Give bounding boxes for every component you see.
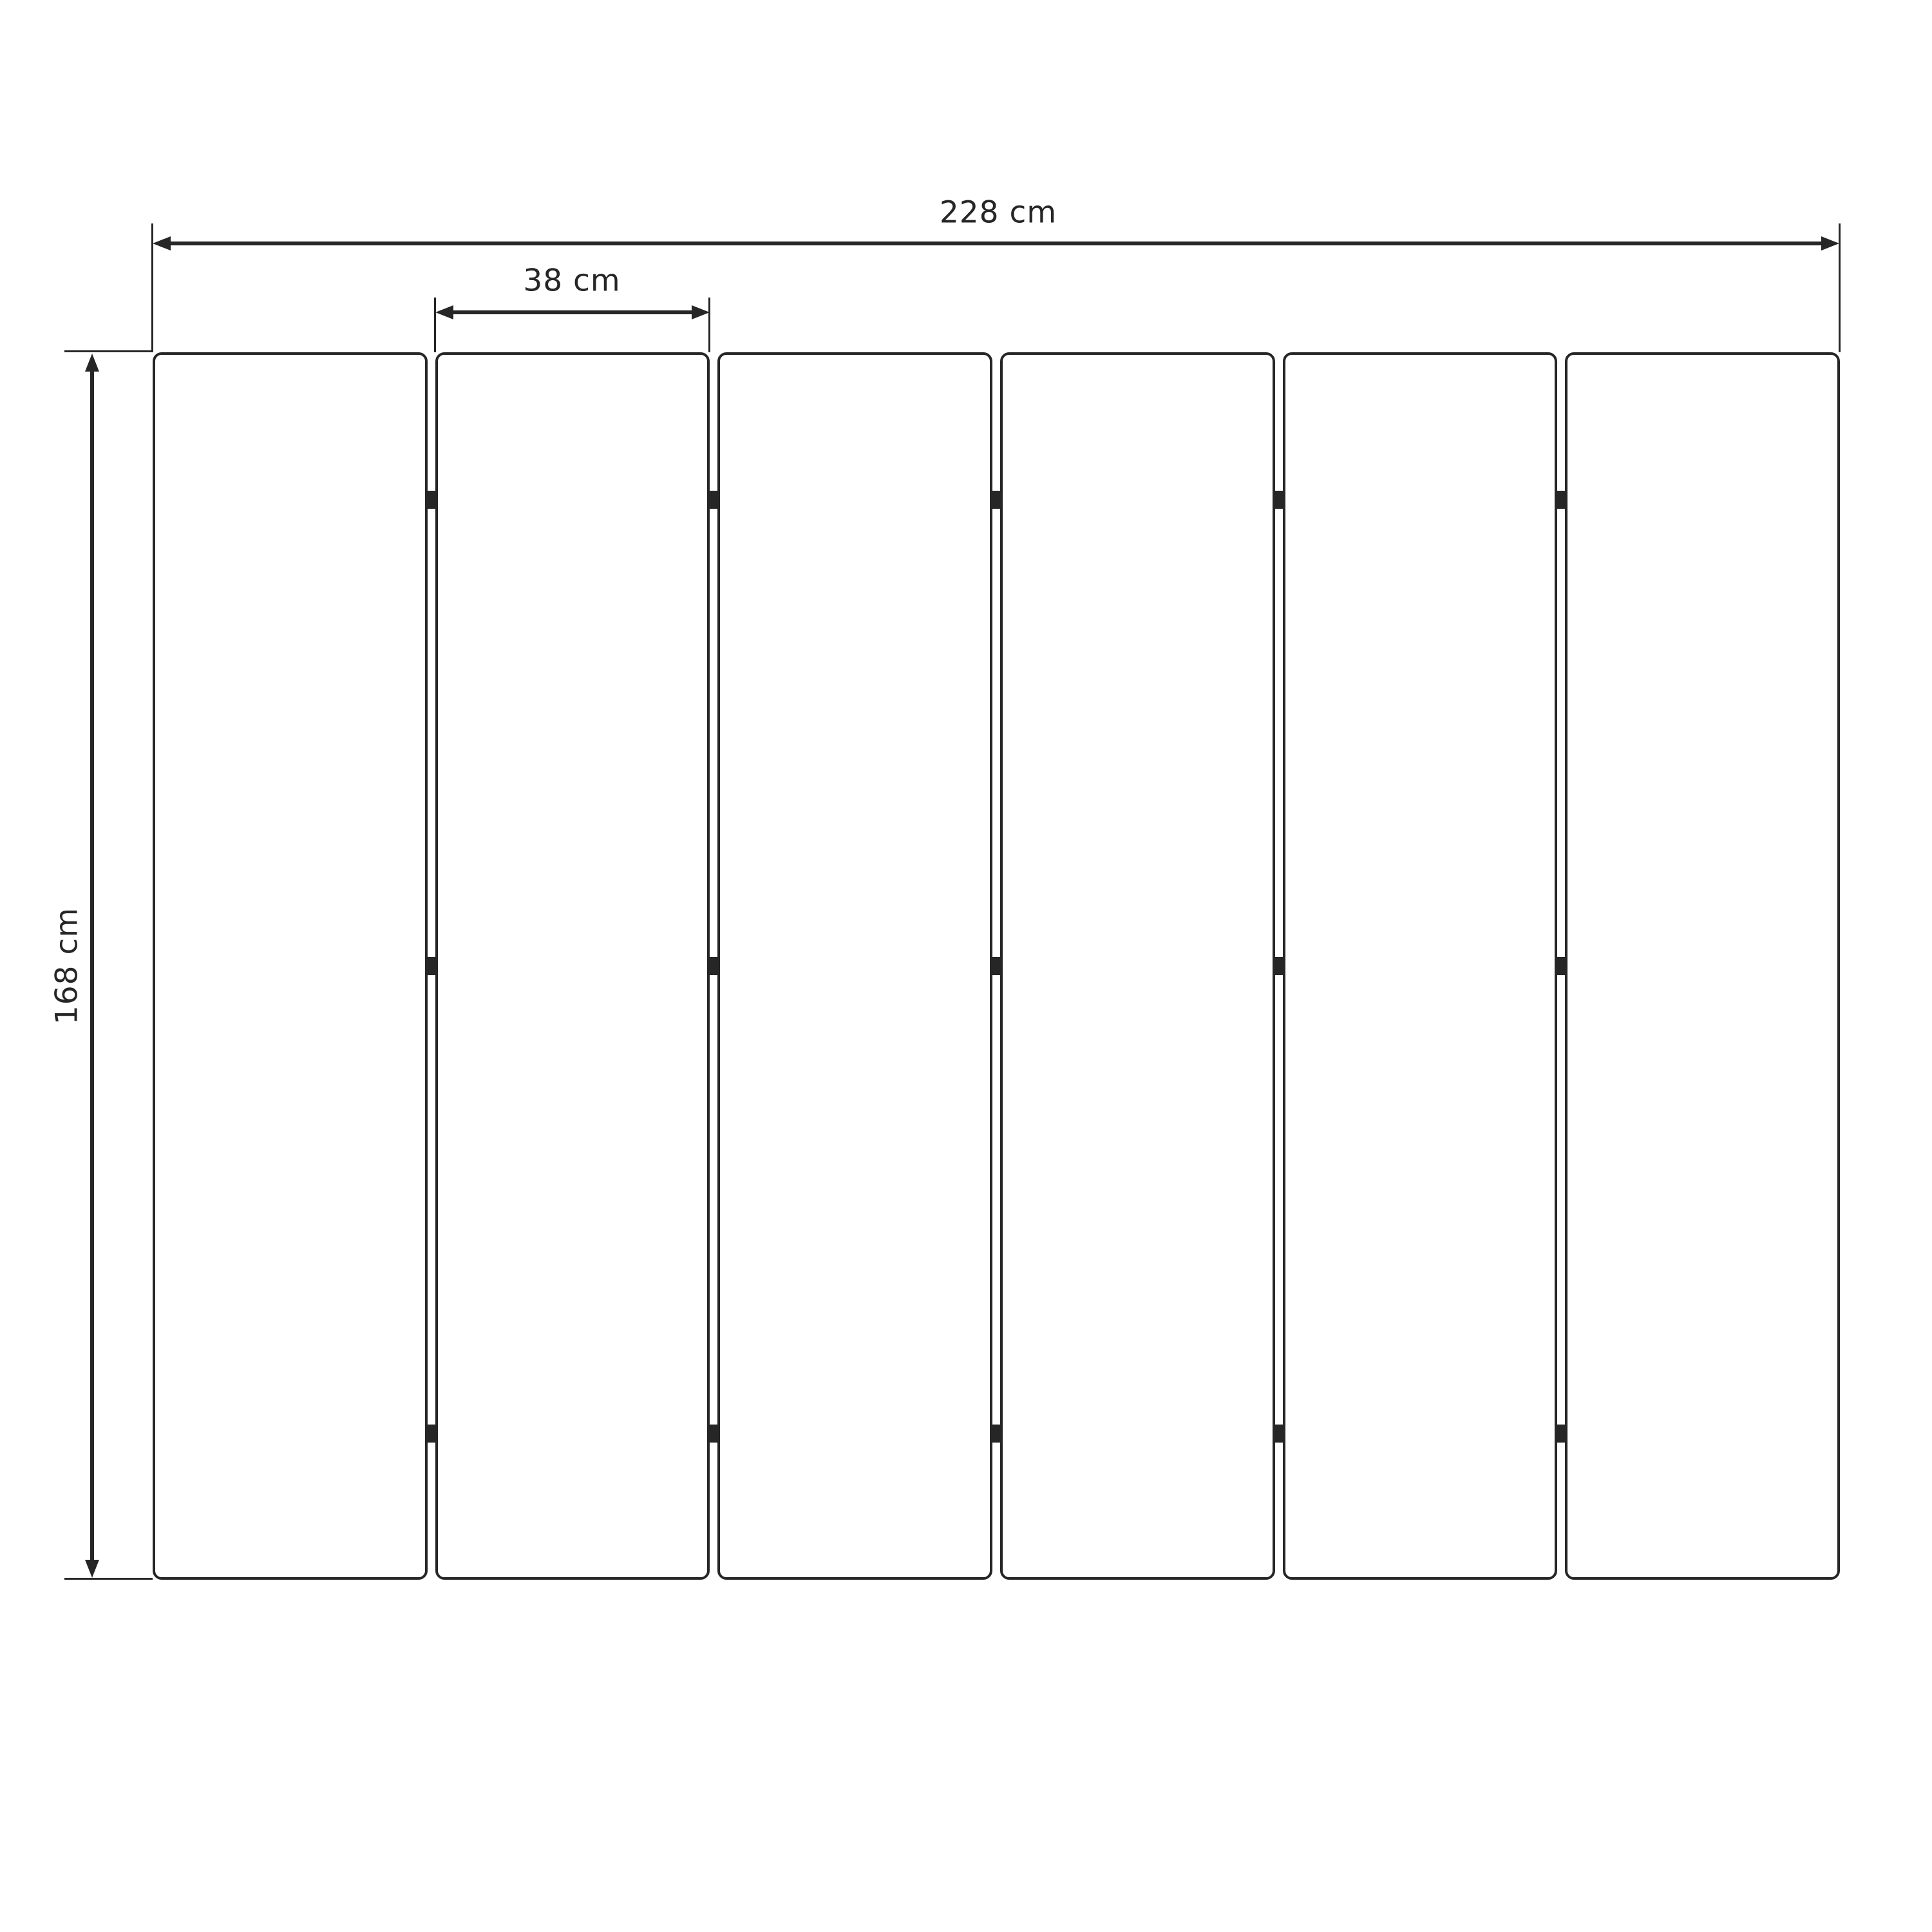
panel-5 xyxy=(1283,352,1558,1580)
hinge-connector-gap3-3 xyxy=(992,1425,1000,1443)
hinge-connector-gap3-1 xyxy=(992,491,1000,509)
hinge-connector-gap4-2 xyxy=(1275,957,1283,975)
hinge-connector-gap2-2 xyxy=(710,957,717,975)
height-label: 168 cm xyxy=(52,907,82,1025)
panel-2 xyxy=(435,352,710,1580)
extension-line-height-bottom xyxy=(64,1578,153,1580)
hinge-connector-gap1-1 xyxy=(428,491,435,509)
hinge-connector-gap4-1 xyxy=(1275,491,1283,509)
hinge-connector-gap4-3 xyxy=(1275,1425,1283,1443)
extension-line-height-top xyxy=(64,350,153,352)
total-width-dimension-arrow xyxy=(153,236,1839,251)
total-width-label: 228 cm xyxy=(940,198,1057,228)
panel-3 xyxy=(717,352,992,1580)
height-dimension-arrow xyxy=(85,354,99,1578)
hinge-connector-gap2-1 xyxy=(710,491,717,509)
panel-width-label: 38 cm xyxy=(523,266,620,296)
hinge-connector-gap5-2 xyxy=(1557,957,1565,975)
hinge-connector-gap5-3 xyxy=(1557,1425,1565,1443)
hinge-connector-gap1-2 xyxy=(428,957,435,975)
panel-width-dimension-arrow xyxy=(435,305,710,319)
hinge-connector-gap1-3 xyxy=(428,1425,435,1443)
panel-1 xyxy=(153,352,428,1580)
panel-6 xyxy=(1565,352,1840,1580)
hinge-connector-gap5-1 xyxy=(1557,491,1565,509)
hinge-connector-gap3-2 xyxy=(992,957,1000,975)
panel-4 xyxy=(1000,352,1275,1580)
panel-dimension-diagram: 228 cm 38 cm 168 cm xyxy=(0,0,1932,1932)
hinge-connector-gap2-3 xyxy=(710,1425,717,1443)
